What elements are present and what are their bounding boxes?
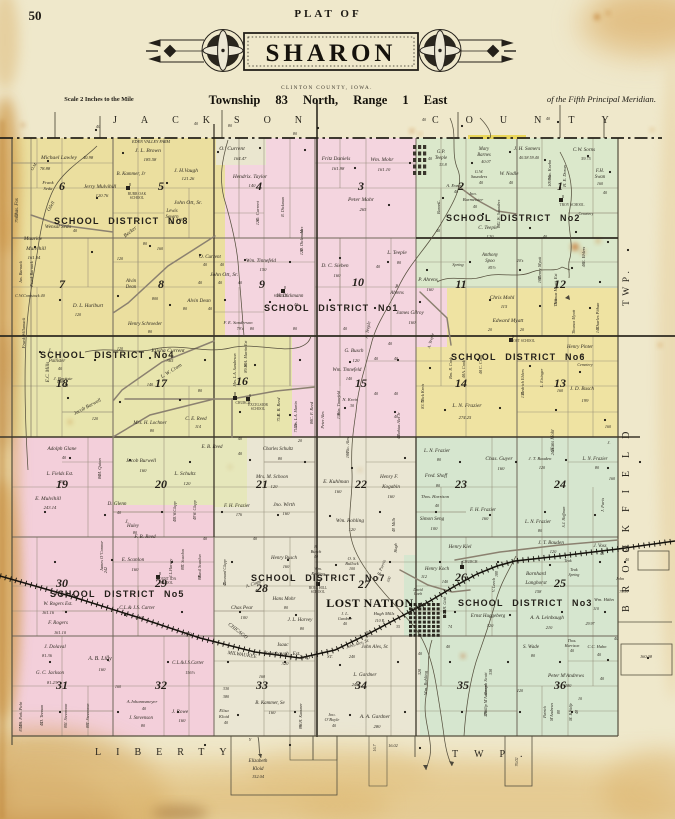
svg-text:40: 40 [332,723,336,728]
svg-text:O. Current: O. Current [199,255,221,260]
svg-text:365: 365 [167,358,175,363]
svg-text:199: 199 [582,398,590,403]
svg-text:120: 120 [539,465,546,470]
svg-text:29.97: 29.97 [586,621,596,626]
svg-text:Teeple: Teeple [435,156,448,161]
svg-text:6: 6 [59,179,65,193]
svg-text:330: 330 [223,686,230,691]
svg-text:J. T. Bauden: J. T. Bauden [538,540,564,546]
svg-text:160: 160 [283,511,291,516]
svg-text:Mathias Ales Jr: Mathias Ales Jr [396,412,401,439]
svg-text:Mulvihill: Mulvihill [25,246,46,252]
svg-text:80: 80 [556,710,561,714]
svg-text:40: 40 [192,516,197,520]
svg-text:Thomas Myatt: Thomas Myatt [571,309,576,334]
svg-text:Chris Mohl: Chris Mohl [490,295,515,301]
svg-text:Wm. Rohling: Wm. Rohling [423,670,428,695]
svg-text:240: 240 [349,654,356,659]
svg-text:SCHOOL: SCHOOL [311,590,325,594]
svg-text:242: 242 [103,567,108,573]
svg-text:Ahrens: Ahrens [389,291,404,296]
svg-text:40: 40 [391,528,396,532]
svg-text:Spring: Spring [452,262,463,267]
svg-text:J. Bartiste: J. Bartiste [54,376,73,381]
svg-text:O’Boyle: O’Boyle [325,717,340,722]
svg-text:L. Eisinger: L. Eisinger [539,368,544,388]
svg-text:Wm. Mohr: Wm. Mohr [370,157,394,163]
svg-text:320: 320 [282,661,290,666]
svg-text:SCHOOL DISTRICT No6: SCHOOL DISTRICT No6 [451,352,586,362]
svg-text:89.58: 89.58 [243,362,248,372]
svg-text:M. B.Wolfe: M. B.Wolfe [568,703,573,722]
svg-text:10: 10 [352,275,364,289]
svg-text:SHARON: SHARON [266,40,397,67]
svg-text:Fritz Daniels: Fritz Daniels [321,156,351,162]
svg-text:P. Ahrens: P. Ahrens [417,277,438,283]
svg-text:Teak: Teak [564,558,572,563]
svg-text:Frank Barnack: Frank Barnack [29,261,34,288]
svg-text:F. H. Frazier: F. H. Frazier [469,508,496,513]
svg-text:280: 280 [374,724,382,729]
svg-text:Kloid: Kloid [251,767,264,772]
svg-text:120: 120 [92,416,99,421]
svg-text:121.26: 121.26 [182,176,195,181]
svg-text:D. Glenn: D. Glenn [106,501,126,507]
svg-text:114: 114 [195,424,201,429]
svg-text:160: 160 [597,181,604,186]
svg-text:100: 100 [241,615,249,620]
svg-text:330: 330 [488,668,493,675]
svg-text:Wm. Tinnefeld: Wm. Tinnefeld [246,257,276,264]
svg-text:11: 11 [455,277,466,291]
svg-text:L. Teeple: L. Teeple [386,250,407,256]
svg-text:120: 120 [487,623,494,628]
svg-text:Chas. Guyer: Chas. Guyer [485,456,513,462]
svg-text:140: 140 [442,579,449,584]
svg-text:Edward Myatt: Edward Myatt [492,318,524,324]
svg-text:40: 40 [574,710,579,714]
svg-text:C. Cook: C. Cook [478,354,483,369]
svg-text:25: 25 [553,576,566,590]
svg-text:160: 160 [482,516,489,521]
svg-text:80: 80 [85,724,90,728]
svg-text:C. E. Reed: C. E. Reed [185,417,207,422]
svg-text:Wm. Tinnefeld: Wm. Tinnefeld [333,368,362,373]
svg-text:Ernst Huggeberg: Ernst Huggeberg [470,614,506,619]
svg-text:J. Dolaval: J. Dolaval [44,644,66,650]
svg-text:160: 160 [269,710,277,715]
svg-text:F.H.: F.H. [595,169,604,174]
svg-text:Bro. R. Cook: Bro. R. Cook [448,357,453,379]
svg-text:SCHOOL DISTRICT No2: SCHOOL DISTRICT No2 [446,213,581,223]
svg-text:160: 160 [609,476,616,481]
svg-text:D. Dickmann: D. Dickmann [299,229,304,252]
svg-text:22: 22 [354,477,367,491]
svg-text:A. A. Leinbaugh: A. A. Leinbaugh [529,615,564,621]
svg-text:T. Stevenson: T. Stevenson [85,704,90,725]
svg-text:40: 40 [343,621,347,626]
svg-text:COUNTY: COUNTY [432,115,636,126]
svg-text:Anthony: Anthony [481,253,499,258]
svg-text:80: 80 [197,576,202,580]
svg-text:180: 180 [494,571,499,577]
svg-text:120: 120 [353,358,361,363]
svg-text:C. F. Reed: C. F. Reed [309,401,314,420]
svg-text:160: 160 [605,424,612,429]
svg-text:40: 40 [625,557,629,562]
svg-text:John Ott, Sr.: John Ott, Sr. [174,200,202,206]
svg-text:120: 120 [117,256,124,261]
svg-text:Patrick: Patrick [542,706,547,719]
svg-text:J. Stevenson: J. Stevenson [129,716,153,721]
svg-text:B. Kammer, Se: B. Kammer, Se [255,701,285,706]
svg-text:Wensal Seda: Wensal Seda [45,224,72,230]
svg-text:160: 160 [140,468,148,473]
svg-text:J.W.Clapp: J.W.Clapp [172,501,177,518]
svg-text:LOST NATION: LOST NATION [326,596,413,610]
svg-text:L. Schultz: L. Schultz [173,471,196,477]
svg-text:140: 140 [147,382,154,387]
svg-text:L. Fields Est.: L. Fields Est. [46,472,74,477]
svg-text:Jacob Burwell: Jacob Burwell [126,458,157,464]
svg-text:380: 380 [223,694,230,699]
svg-text:Alvin: Alvin [125,279,137,284]
svg-text:SCHOOL DISTRICT No3: SCHOOL DISTRICT No3 [458,598,593,608]
svg-text:SCHOOL: SCHOOL [251,407,265,411]
svg-text:80: 80 [180,566,185,570]
svg-text:A. Cook: A. Cook [461,360,466,375]
svg-text:24: 24 [553,477,566,491]
svg-text:M′Andrews: M′Andrews [549,703,554,723]
svg-text:161.04: 161.04 [28,255,41,260]
svg-text:29: 29 [154,576,167,590]
svg-text:A. B. Lilly: A. B. Lilly [87,656,112,662]
svg-text:158: 158 [535,589,542,594]
svg-text:320: 320 [417,668,422,675]
svg-text:53.8: 53.8 [439,162,447,167]
svg-text:E. Ehlers: E. Ehlers [581,247,586,265]
svg-text:20: 20 [154,477,167,491]
svg-text:Michael Lawley: Michael Lawley [40,155,77,161]
svg-text:8: 8 [158,277,164,291]
svg-text:A. A. Gardner: A. A. Gardner [359,714,391,720]
svg-text:LIBERTY: LIBERTY [95,747,242,758]
svg-text:JACKSON: JACKSON [113,115,326,126]
svg-text:110 R.: 110 R. [375,618,385,623]
svg-text:Frank: Frank [41,180,54,185]
svg-text:32: 32 [154,678,167,692]
svg-text:5: 5 [158,179,164,193]
svg-text:Langhorst: Langhorst [524,580,547,586]
svg-text:John: John [616,576,624,581]
svg-text:J.: J. [48,349,51,354]
svg-text:W.H. Kammer: W.H. Kammer [298,703,303,727]
svg-text:Henry Schroeder: Henry Schroeder [127,322,162,327]
svg-text:O. Current: O. Current [255,200,260,221]
svg-text:71.25: 71.25 [293,424,298,433]
svg-text:160: 160 [498,466,506,471]
svg-text:160: 160 [157,246,164,251]
svg-text:40.58 59.40: 40.58 59.40 [519,155,540,160]
svg-text:Dedrich Ehlers: Dedrich Ehlers [520,369,525,396]
svg-text:100: 100 [345,451,350,458]
svg-text:116: 116 [553,298,558,305]
svg-text:Stumbaugh , Est.: Stumbaugh , Est. [265,651,300,657]
svg-text:79.97: 79.97 [619,589,629,594]
svg-text:Scale 2 Inches to the Mile: Scale 2 Inches to the Mile [64,96,134,103]
svg-text:Elisa: Elisa [218,708,229,713]
svg-text:D. L. Hurlburt: D. L. Hurlburt [72,303,104,309]
svg-text:120: 120 [487,234,495,239]
svg-text:Henry Kiel: Henry Kiel [448,544,472,550]
svg-text:L. N. Frazier: L. N. Frazier [451,403,482,409]
svg-text:Henry F.: Henry F. [379,474,398,480]
svg-text:800: 800 [152,296,159,301]
svg-text:115: 115 [501,304,508,309]
svg-text:Mrs. M. Schoon: Mrs. M. Schoon [255,475,288,480]
svg-text:Henry Koch: Henry Koch [424,567,450,572]
svg-text:40: 40 [597,652,601,657]
svg-text:CLINTON COUNTY, IOWA.: CLINTON COUNTY, IOWA. [281,85,373,91]
svg-text:40: 40 [39,722,44,726]
svg-text:110: 110 [593,606,599,611]
svg-text:176: 176 [236,512,243,517]
svg-text:Mrs. H. Lochner: Mrs. H. Lochner [132,421,166,426]
svg-text:Rohling: Rohling [310,571,324,576]
svg-text:40.98: 40.98 [83,155,94,160]
svg-text:80: 80 [298,725,303,729]
svg-text:TWP.: TWP. [622,267,632,306]
svg-text:Swan: Swan [595,175,606,180]
svg-text:243.14: 243.14 [44,505,57,510]
svg-text:100: 100 [349,566,355,571]
svg-text:N. Kreis: N. Kreis [341,397,357,402]
svg-text:160: 160 [115,684,122,689]
svg-text:150: 150 [260,267,268,272]
svg-text:Burmeister: Burmeister [463,197,484,202]
svg-text:161.10: 161.10 [378,167,391,172]
svg-text:Henry Myatt: Henry Myatt [537,256,542,280]
svg-text:Peter Mahr: Peter Mahr [347,197,375,203]
svg-text:20’s: 20’s [517,258,524,263]
svg-text:160: 160 [259,674,266,679]
svg-text:200: 200 [565,683,572,688]
svg-text:Frank Willamack: Frank Willamack [21,317,26,349]
svg-text:160: 160 [427,287,435,292]
svg-text:M. Quinn: M. Quinn [97,457,102,476]
svg-text:Jno. Wirth: Jno. Wirth [273,502,295,508]
svg-text:F. E. Sanderson: F. E. Sanderson [222,320,253,325]
svg-text:Wm. Hähn: Wm. Hähn [594,597,614,602]
svg-text:265: 265 [360,207,368,212]
svg-text:120: 120 [483,711,488,717]
svg-text:Kogabin: Kogabin [381,484,400,490]
svg-text:40: 40 [314,554,318,559]
svg-text:Thos. Harrison: Thos. Harrison [421,494,450,499]
svg-text:Charles Pithan: Charles Pithan [595,302,600,330]
svg-text:Lewis: Lewis [165,209,177,214]
svg-text:16: 16 [236,374,248,388]
svg-text:Kloid: Kloid [218,714,230,719]
svg-text:E. B. Reed: E. B. Reed [200,445,223,450]
svg-text:16.02: 16.02 [388,743,397,748]
svg-text:W. Rogers Est.: W. Rogers Est. [43,602,72,607]
svg-text:L. N. Frazier: L. N. Frazier [581,457,607,462]
svg-text:D. Teeman: D. Teeman [39,705,44,724]
svg-text:F. Rogers: F. Rogers [47,620,68,626]
svg-text:109.56: 109.56 [547,174,552,186]
svg-text:E. B. Reed: E. B. Reed [276,397,281,417]
svg-text:C.C. Hahn: C.C. Hahn [588,644,608,649]
svg-text:120: 120 [299,248,304,255]
svg-text:Barnhard: Barnhard [526,571,546,577]
svg-text:41: 41 [170,220,174,225]
svg-text:Y: Y [249,737,252,742]
svg-text:Barnes: Barnes [477,153,491,158]
svg-text:Pallister: Pallister [48,359,66,364]
svg-text:J. T. Bauden: J. T. Bauden [529,456,553,461]
svg-text:120: 120 [517,688,524,693]
svg-text:40.07: 40.07 [481,159,491,164]
svg-text:Spring: Spring [569,572,580,577]
svg-text:40: 40 [570,648,574,653]
svg-text:Fred. Shoff: Fred. Shoff [424,474,448,479]
svg-text:150’s: 150’s [184,631,193,636]
svg-text:J. L. Brown: J. L. Brown [135,148,161,154]
svg-text:John Ott, Sr.: John Ott, Sr. [210,272,238,278]
svg-text:161.10: 161.10 [54,630,67,635]
svg-text:150: 150 [336,412,341,419]
svg-text:240: 240 [550,448,555,455]
svg-text:John Ales, Sr.: John Ales, Sr. [361,645,388,650]
svg-text:Mills: Mills [391,517,396,527]
svg-text:Henry Pinter: Henry Pinter [566,345,593,350]
svg-text:J. L. Harvey: J. L. Harvey [288,618,313,623]
svg-text:50: 50 [29,8,42,23]
svg-text:81.23: 81.23 [47,680,58,685]
svg-text:Hugh: Hugh [393,543,398,553]
svg-text:140: 140 [595,326,600,333]
svg-text:160: 160 [409,320,417,325]
svg-text:160: 160 [335,489,343,494]
svg-text:40: 40 [614,636,618,641]
svg-text:Basil Scanlon: Basil Scanlon [197,554,202,577]
svg-text:H. Dickmann: H. Dickmann [276,294,304,299]
svg-text:C.L.&J.S.Carter: C.L.&J.S.Carter [172,661,204,666]
svg-text:J.: J. [607,440,610,445]
svg-text:23: 23 [454,477,467,491]
svg-text:Henry Busch: Henry Busch [270,556,297,561]
svg-text:Chas Pear: Chas Pear [231,605,254,611]
svg-text:James O’Connor: James O’Connor [99,541,104,571]
svg-text:Leonard Clapp: Leonard Clapp [222,559,227,585]
svg-text:120: 120 [184,481,192,486]
svg-text:40: 40 [396,435,401,439]
svg-text:120: 120 [550,549,557,554]
svg-text:120.76: 120.76 [96,193,109,198]
svg-text:35: 35 [396,624,400,629]
svg-text:H. E. Doran: H. E. Doran [562,164,567,188]
svg-text:W. Nodle: W. Nodle [500,171,520,177]
svg-text:80: 80 [63,724,68,728]
svg-text:240: 240 [136,615,144,620]
svg-text:160: 160 [557,388,564,393]
svg-text:Simon Seng: Simon Seng [420,516,445,522]
svg-text:59.75: 59.75 [581,156,590,161]
svg-text:L. Gardner: L. Gardner [352,672,377,678]
svg-text:CHURCH: CHURCH [236,401,251,405]
svg-text:AND: AND [299,655,310,661]
svg-text:83.75: 83.75 [420,399,425,408]
svg-text:J. Stevenson: J. Stevenson [63,704,68,725]
svg-text:120: 120 [75,312,82,317]
svg-text:S. Wade: S. Wade [523,645,540,650]
svg-text:83.77: 83.77 [18,722,23,732]
svg-text:BROOKFIELD: BROOKFIELD [621,419,632,612]
svg-text:E. Kuhlman: E. Kuhlman [322,479,349,485]
svg-text:A.H. Gish: A.H. Gish [442,597,447,615]
svg-text:Mary: Mary [478,147,490,152]
svg-text:30: 30 [55,576,68,590]
svg-text:Maurice: Maurice [23,236,43,242]
svg-text:Jas. Barnack: Jas. Barnack [18,261,23,283]
svg-text:160: 160 [334,273,342,278]
svg-text:Hans Mohr: Hans Mohr [551,429,556,452]
svg-text:EDEN VALLEY FARM: EDEN VALLEY FARM [131,139,171,144]
svg-text:79.89: 79.89 [14,212,19,222]
svg-text:C.W. Sorns: C.W. Sorns [573,148,595,153]
svg-text:7: 7 [59,277,66,291]
svg-text:Wm. Rohling: Wm. Rohling [336,518,364,524]
svg-text:Charles Schultz: Charles Schultz [263,447,293,452]
svg-text:L. N. Frazier: L. N. Frazier [524,520,551,525]
svg-text:Huley: Huley [126,524,140,529]
svg-text:156⅓: 156⅓ [185,670,195,675]
svg-text:240: 240 [352,682,359,687]
svg-text:26: 26 [454,570,467,584]
svg-text:Elizabeth: Elizabeth [248,759,268,764]
svg-text:160.08: 160.08 [640,654,653,659]
svg-text:T. Scanlon: T. Scanlon [180,549,185,567]
svg-text:140: 140 [249,183,257,188]
svg-text:104: 104 [537,277,542,283]
svg-text:ST.: ST. [327,654,333,659]
svg-text:W.A. Martin Est: W.A. Martin Est [243,340,248,368]
svg-text:160: 160 [99,667,107,672]
svg-text:J. D. Busch: J. D. Busch [570,386,594,392]
svg-text:112: 112 [421,574,427,579]
svg-text:ROST SCHOOL: ROST SCHOOL [511,339,535,343]
svg-text:74: 74 [442,613,447,617]
svg-text:Adolph Glane: Adolph Glane [47,446,78,452]
svg-text:79’s: 79’s [237,326,244,331]
svg-text:A.Johannsmeyer: A.Johannsmeyer [126,699,158,704]
svg-text:C. Teeple: C. Teeple [478,225,498,231]
svg-text:3: 3 [357,179,364,193]
svg-text:Peter Ales: Peter Ales [320,411,325,430]
svg-text:140: 140 [346,376,353,381]
svg-text:120: 120 [255,218,260,225]
svg-text:27: 27 [357,577,371,591]
svg-text:164.47: 164.47 [234,156,247,161]
svg-text:161.98: 161.98 [332,166,345,171]
svg-text:TWP.: TWP. [452,749,539,760]
svg-text:G. C. Jackson: G. C. Jackson [36,671,65,676]
svg-text:75.8: 75.8 [276,413,281,421]
svg-text:Hugh Mills: Hugh Mills [373,611,395,616]
svg-text:Spoo: Spoo [485,259,495,264]
svg-text:33: 33 [255,678,268,692]
